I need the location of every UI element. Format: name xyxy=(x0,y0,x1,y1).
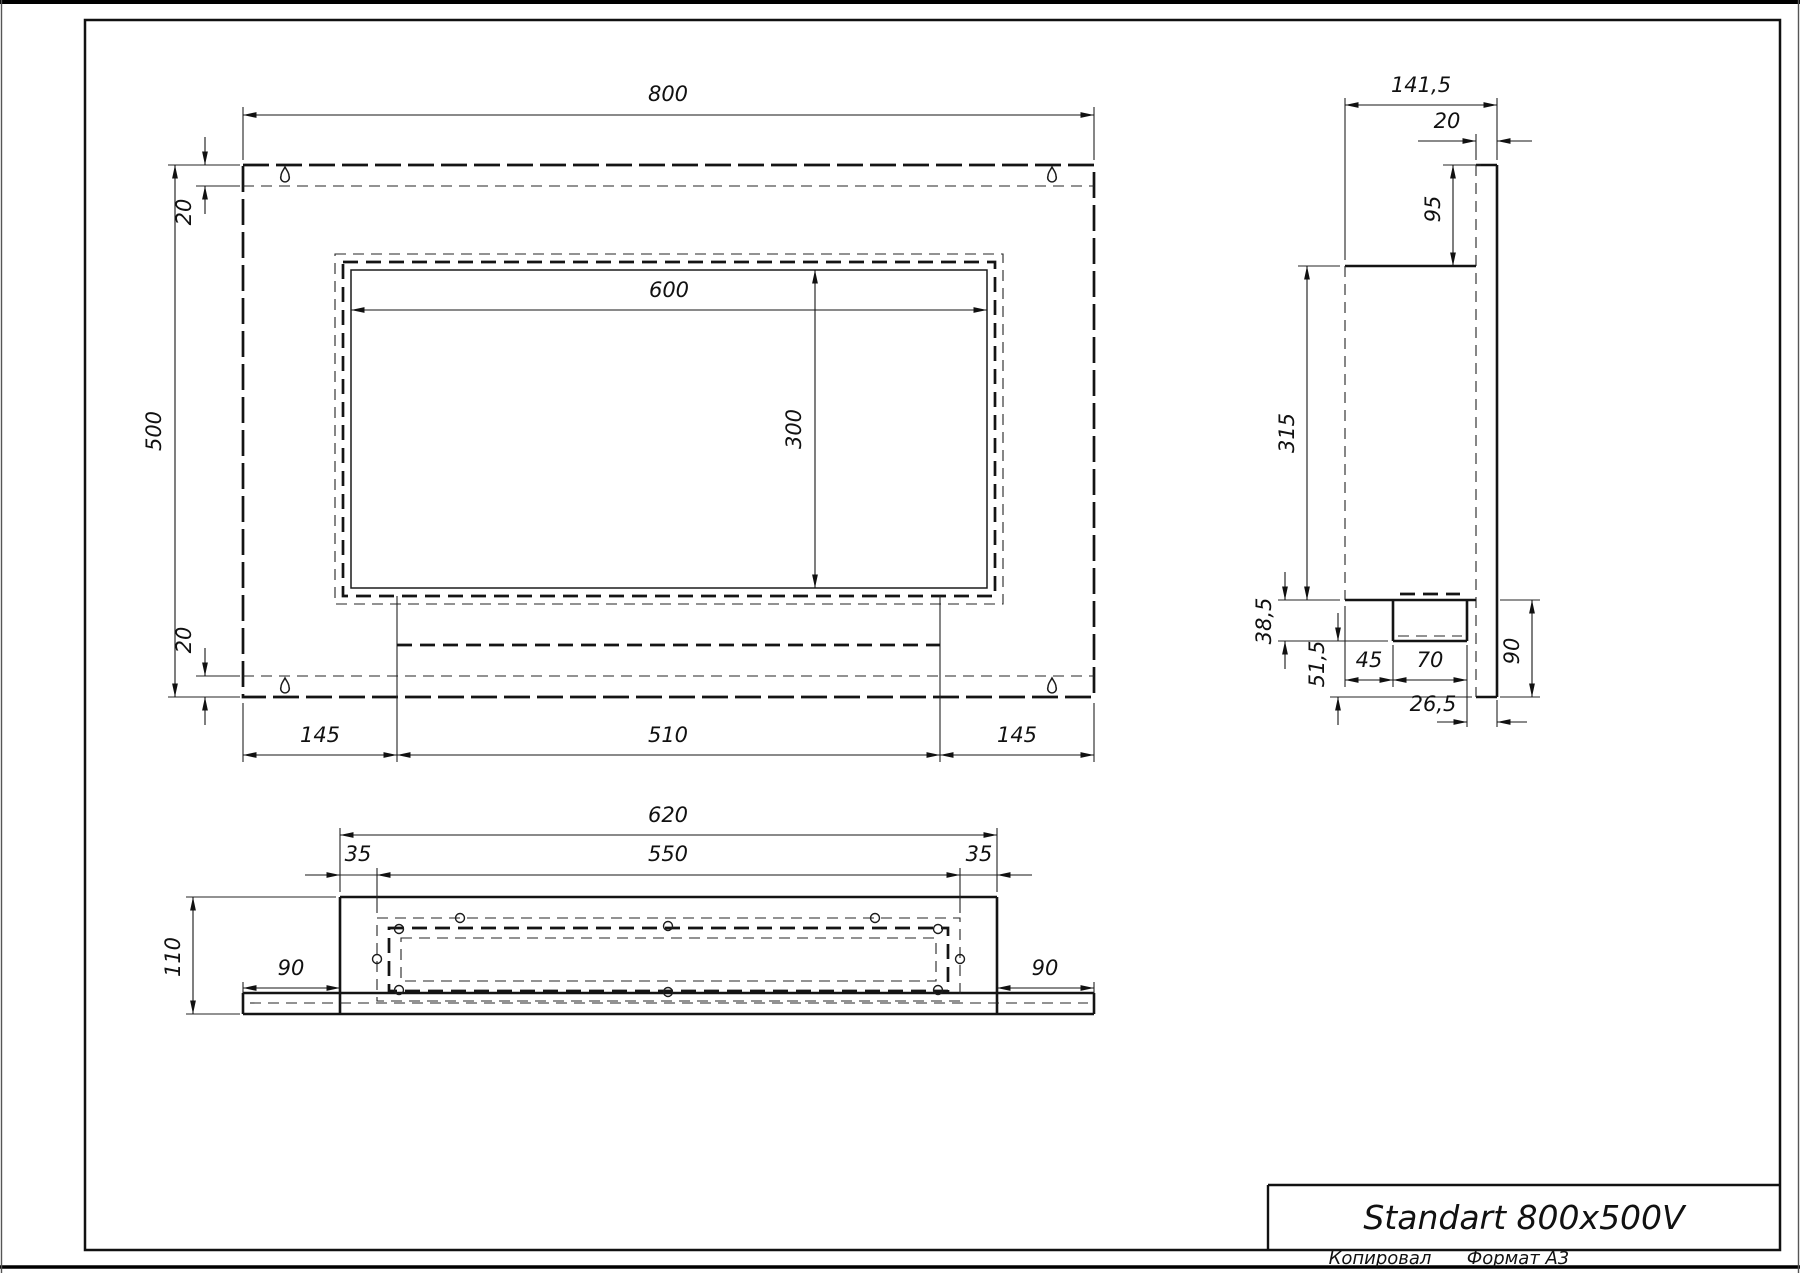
dim-front-bottom-right: 145 xyxy=(997,723,1037,747)
technical-drawing: 800 500 20 20 600 300 145 510 145 xyxy=(0,0,1800,1273)
front-body-outline xyxy=(243,165,1094,697)
dim-bottom-flange-right: 90 xyxy=(1032,956,1059,980)
copied-by-label: Копировал xyxy=(1329,1248,1432,1269)
dim-bottom-depth: 110 xyxy=(161,937,185,977)
front-opening-outer xyxy=(335,254,1003,604)
dim-bottom-inset-left: 35 xyxy=(345,842,372,866)
dim-front-opening-height: 300 xyxy=(782,409,806,449)
dim-front-top-inset: 20 xyxy=(172,199,196,226)
dim-bottom-inner-width: 550 xyxy=(648,842,688,866)
dim-bottom-flange-left: 90 xyxy=(278,956,305,980)
format-label: Формат А3 xyxy=(1467,1248,1570,1269)
dim-side-tray-width: 70 xyxy=(1417,648,1444,672)
side-view: 141,5 20 95 315 38,5 51,5 45 70 xyxy=(1252,73,1540,727)
title-block: Standart 800x500V Копировал Формат А3 xyxy=(1268,1185,1780,1269)
dim-front-bottom-middle: 510 xyxy=(648,723,688,747)
front-view: 800 500 20 20 600 300 145 510 145 xyxy=(142,82,1094,762)
dim-side-lower-gap: 51,5 xyxy=(1305,641,1329,688)
dim-side-body-height: 315 xyxy=(1275,413,1299,453)
dim-side-tray-depth: 38,5 xyxy=(1252,598,1276,645)
dim-bottom-inset-right: 35 xyxy=(966,842,993,866)
drawing-frame xyxy=(85,20,1780,1250)
dim-side-tray-inset: 45 xyxy=(1356,648,1383,672)
dim-front-width: 800 xyxy=(648,82,688,106)
drawing-title: Standart 800x500V xyxy=(1363,1198,1687,1237)
screw-hole-icon xyxy=(373,914,965,997)
dim-front-bottom-inset: 20 xyxy=(172,627,196,654)
dim-side-lower-height: 90 xyxy=(1500,638,1524,665)
dim-side-plate-thickness: 20 xyxy=(1434,109,1461,133)
bottom-view: 620 35 550 35 110 90 90 xyxy=(161,803,1094,1014)
dim-front-opening-width: 600 xyxy=(649,278,689,302)
drawing-sheet: 800 500 20 20 600 300 145 510 145 xyxy=(0,0,1800,1273)
dim-side-bottom-inset: 26,5 xyxy=(1410,692,1457,716)
dim-front-bottom-left: 145 xyxy=(300,723,340,747)
dim-side-top-offset: 95 xyxy=(1421,196,1445,223)
front-opening-inner xyxy=(351,270,987,588)
dim-bottom-overall-width: 620 xyxy=(648,803,688,827)
front-opening-mid xyxy=(343,262,995,596)
dim-side-overall-width: 141,5 xyxy=(1391,73,1451,97)
dim-front-height: 500 xyxy=(142,411,166,451)
page-border xyxy=(0,0,1800,1273)
bottom-tray-inner xyxy=(401,938,936,981)
